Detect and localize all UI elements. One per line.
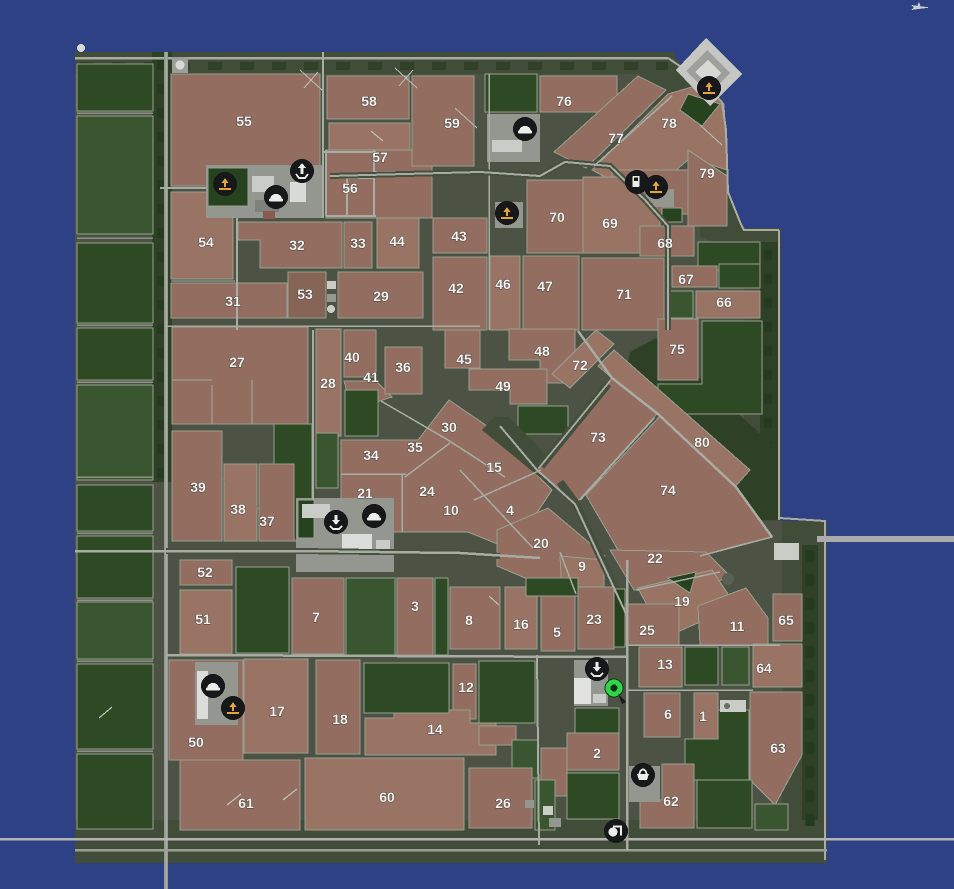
svg-text:72: 72 xyxy=(572,357,588,373)
svg-text:1: 1 xyxy=(699,708,707,724)
svg-text:36: 36 xyxy=(395,359,411,375)
svg-text:40: 40 xyxy=(344,349,360,365)
svg-text:33: 33 xyxy=(350,235,366,251)
svg-text:57: 57 xyxy=(372,149,388,165)
svg-text:60: 60 xyxy=(379,789,395,805)
svg-text:68: 68 xyxy=(657,235,673,251)
svg-text:50: 50 xyxy=(188,734,204,750)
svg-text:62: 62 xyxy=(663,793,679,809)
svg-text:41: 41 xyxy=(363,369,379,385)
svg-text:71: 71 xyxy=(616,286,632,302)
svg-text:76: 76 xyxy=(556,93,572,109)
svg-text:4: 4 xyxy=(506,502,514,518)
svg-text:21: 21 xyxy=(357,485,373,501)
svg-text:12: 12 xyxy=(458,679,474,695)
svg-text:29: 29 xyxy=(373,288,389,304)
svg-text:65: 65 xyxy=(778,612,794,628)
svg-text:6: 6 xyxy=(664,706,672,722)
svg-text:52: 52 xyxy=(197,564,213,580)
svg-text:26: 26 xyxy=(495,795,511,811)
svg-text:11: 11 xyxy=(730,618,745,634)
svg-text:73: 73 xyxy=(590,429,606,445)
svg-text:30: 30 xyxy=(441,419,457,435)
svg-text:38: 38 xyxy=(230,501,246,517)
svg-text:9: 9 xyxy=(578,558,586,574)
svg-text:18: 18 xyxy=(332,711,348,727)
svg-text:19: 19 xyxy=(674,593,690,609)
svg-text:2: 2 xyxy=(593,745,601,761)
svg-text:70: 70 xyxy=(549,209,565,225)
svg-text:58: 58 xyxy=(361,93,377,109)
svg-text:78: 78 xyxy=(661,115,677,131)
svg-text:79: 79 xyxy=(699,165,715,181)
svg-text:48: 48 xyxy=(534,343,550,359)
svg-text:17: 17 xyxy=(269,703,285,719)
svg-text:64: 64 xyxy=(756,660,772,676)
svg-text:66: 66 xyxy=(716,294,732,310)
svg-text:37: 37 xyxy=(259,513,275,529)
svg-text:16: 16 xyxy=(513,616,529,632)
svg-text:5: 5 xyxy=(553,624,561,640)
svg-text:46: 46 xyxy=(495,276,511,292)
svg-text:13: 13 xyxy=(657,656,673,672)
svg-text:63: 63 xyxy=(770,740,786,756)
svg-text:54: 54 xyxy=(198,234,214,250)
svg-text:77: 77 xyxy=(608,130,624,146)
svg-text:69: 69 xyxy=(602,215,618,231)
svg-text:51: 51 xyxy=(195,611,211,627)
svg-text:45: 45 xyxy=(456,351,472,367)
svg-text:47: 47 xyxy=(537,278,553,294)
svg-text:8: 8 xyxy=(465,612,473,628)
svg-text:42: 42 xyxy=(448,280,464,296)
svg-text:56: 56 xyxy=(342,180,358,196)
svg-text:3: 3 xyxy=(411,598,419,614)
svg-text:22: 22 xyxy=(647,550,663,566)
svg-text:31: 31 xyxy=(225,293,241,309)
svg-text:55: 55 xyxy=(236,113,252,129)
svg-text:39: 39 xyxy=(190,479,206,495)
svg-text:80: 80 xyxy=(694,434,710,450)
svg-text:49: 49 xyxy=(495,378,511,394)
svg-text:59: 59 xyxy=(444,115,460,131)
svg-text:25: 25 xyxy=(639,622,655,638)
svg-text:32: 32 xyxy=(289,237,305,253)
svg-text:14: 14 xyxy=(427,721,443,737)
svg-text:75: 75 xyxy=(669,341,685,357)
svg-text:24: 24 xyxy=(419,483,435,499)
svg-text:34: 34 xyxy=(363,447,379,463)
svg-text:43: 43 xyxy=(451,228,467,244)
svg-text:10: 10 xyxy=(443,502,459,518)
svg-text:35: 35 xyxy=(407,439,423,455)
svg-text:44: 44 xyxy=(389,233,405,249)
svg-text:53: 53 xyxy=(297,286,313,302)
svg-text:67: 67 xyxy=(678,271,694,287)
svg-text:61: 61 xyxy=(238,795,254,811)
svg-text:7: 7 xyxy=(312,609,320,625)
svg-text:28: 28 xyxy=(320,375,336,391)
svg-text:15: 15 xyxy=(486,459,502,475)
svg-text:23: 23 xyxy=(586,611,602,627)
svg-text:74: 74 xyxy=(660,482,676,498)
svg-text:27: 27 xyxy=(229,354,245,370)
svg-text:20: 20 xyxy=(533,535,549,551)
